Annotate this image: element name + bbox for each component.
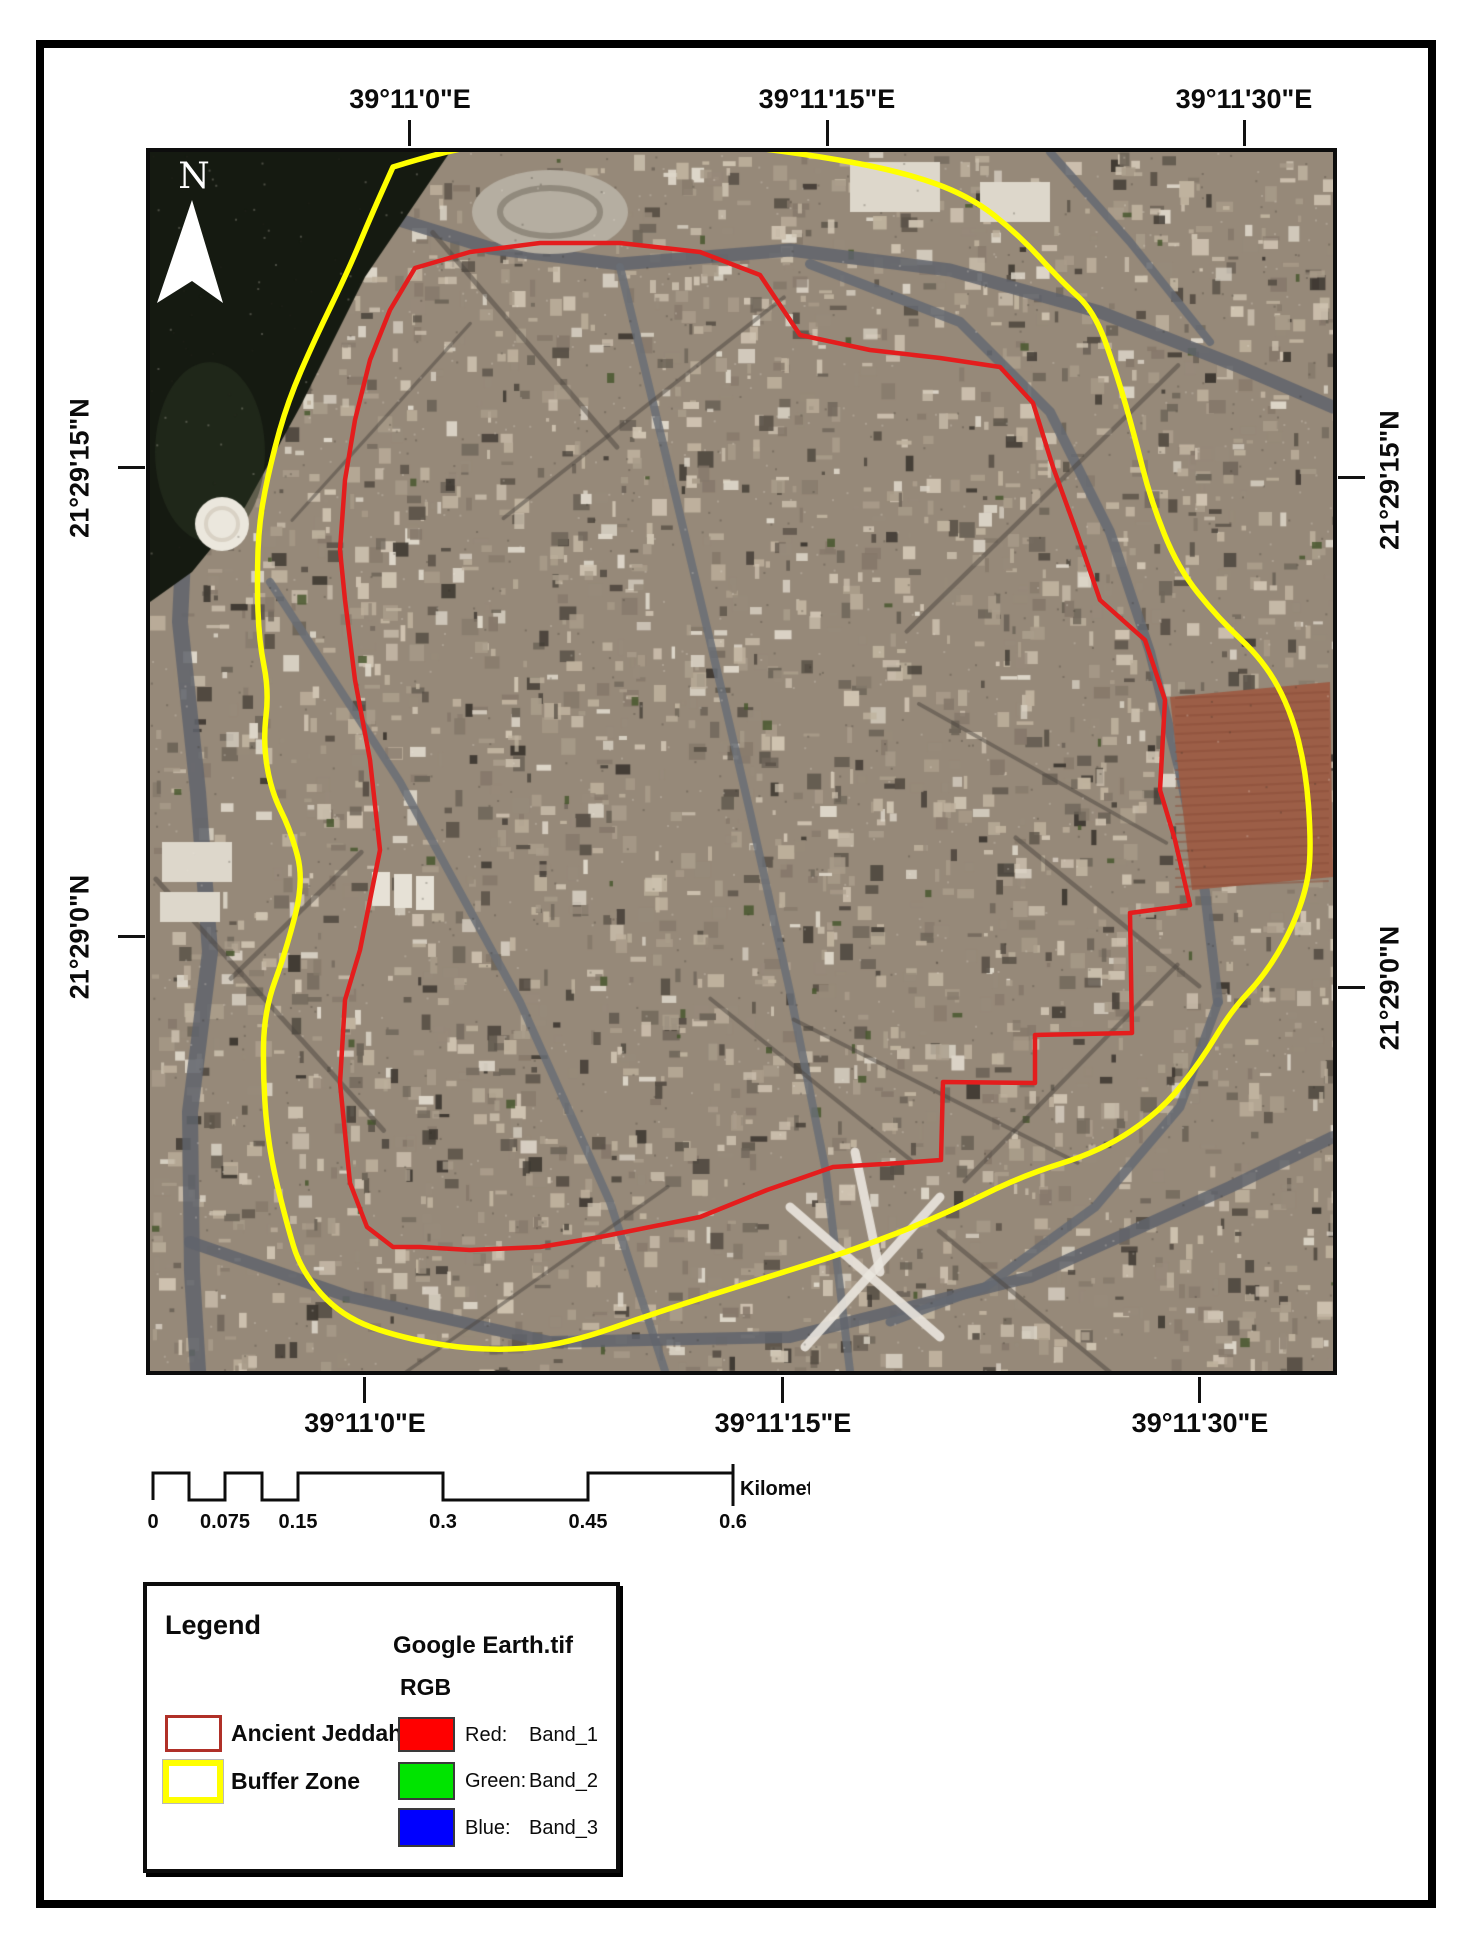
map-frame bbox=[146, 148, 1337, 1375]
legend-band-row-blue: Blue:Band_3 bbox=[465, 1817, 598, 1840]
legend-item-buffer-zone-label: Buffer Zone bbox=[231, 1768, 360, 1795]
scalebar-label-3: 0.3 bbox=[429, 1511, 457, 1533]
legend-raster-title: Google Earth.tif bbox=[393, 1632, 573, 1660]
tick-top-1 bbox=[408, 120, 411, 146]
coord-label-top-2: 39°11'15"E bbox=[759, 84, 896, 115]
scalebar-label-0: 0 bbox=[147, 1511, 158, 1533]
coord-label-top-3: 39°11'30"E bbox=[1176, 84, 1313, 115]
tick-right-1 bbox=[1338, 476, 1365, 479]
legend-raster-mode: RGB bbox=[400, 1674, 451, 1701]
legend-box: Legend Google Earth.tif RGB Ancient Jedd… bbox=[143, 1582, 620, 1873]
tick-top-2 bbox=[826, 120, 829, 146]
legend-band-channel-blue: Blue: bbox=[465, 1817, 529, 1840]
legend-band-channel-green: Green: bbox=[465, 1770, 529, 1793]
scalebar-outline bbox=[153, 1464, 733, 1506]
scalebar-label-1: 0.075 bbox=[200, 1511, 250, 1533]
legend-band-name-red: Band_1 bbox=[529, 1724, 598, 1746]
scalebar-label-2: 0.15 bbox=[279, 1511, 318, 1533]
buffer-zone-outline bbox=[258, 152, 1311, 1349]
tick-bottom-3 bbox=[1198, 1377, 1201, 1403]
coord-label-bottom-2: 39°11'15"E bbox=[715, 1408, 852, 1439]
legend-swatch-buffer-zone bbox=[163, 1760, 223, 1803]
tick-bottom-2 bbox=[781, 1377, 784, 1403]
legend-band-channel-red: Red: bbox=[465, 1724, 529, 1747]
legend-band-swatch-red bbox=[398, 1717, 455, 1752]
north-label: N bbox=[178, 156, 210, 197]
tick-top-3 bbox=[1243, 120, 1246, 146]
coord-label-left-2: 21°29'0"N bbox=[65, 875, 96, 1000]
boundary-overlay bbox=[150, 152, 1333, 1371]
coord-label-right-2: 21°29'0"N bbox=[1375, 926, 1406, 1051]
scalebar-label-4: 0.45 bbox=[569, 1511, 608, 1533]
coord-label-bottom-3: 39°11'30"E bbox=[1132, 1408, 1269, 1439]
north-arrow: N bbox=[156, 150, 240, 320]
legend-swatch-ancient-jeddah bbox=[165, 1715, 222, 1752]
legend-band-swatch-blue bbox=[398, 1808, 455, 1847]
tick-right-2 bbox=[1338, 986, 1365, 989]
legend-band-row-green: Green:Band_2 bbox=[465, 1770, 598, 1793]
scalebar: 0 0.075 0.15 0.3 0.45 0.6 Kilometers bbox=[130, 1460, 810, 1546]
figure-page: N 39°11'0"E 39°11'15"E 39°11'30"E 39°11'… bbox=[0, 0, 1469, 1938]
legend-band-name-green: Band_2 bbox=[529, 1770, 598, 1792]
legend-title: Legend bbox=[165, 1610, 261, 1641]
tick-left-2 bbox=[118, 935, 145, 938]
coord-label-bottom-1: 39°11'0"E bbox=[304, 1408, 426, 1439]
ancient-jeddah-outline bbox=[340, 243, 1190, 1250]
legend-item-ancient-jeddah-label: Ancient Jeddah bbox=[231, 1720, 402, 1747]
scalebar-label-5: 0.6 bbox=[719, 1511, 747, 1533]
tick-left-1 bbox=[118, 466, 145, 469]
scalebar-unit-label: Kilometers bbox=[740, 1478, 810, 1500]
legend-band-swatch-green bbox=[398, 1762, 455, 1800]
coord-label-left-1: 21°29'15"N bbox=[65, 398, 96, 538]
tick-bottom-1 bbox=[363, 1377, 366, 1403]
coord-label-right-1: 21°29'15"N bbox=[1375, 410, 1406, 550]
coord-label-top-1: 39°11'0"E bbox=[349, 84, 471, 115]
north-arrow-icon bbox=[157, 200, 223, 303]
legend-band-name-blue: Band_3 bbox=[529, 1817, 598, 1839]
legend-band-row-red: Red:Band_1 bbox=[465, 1724, 598, 1747]
